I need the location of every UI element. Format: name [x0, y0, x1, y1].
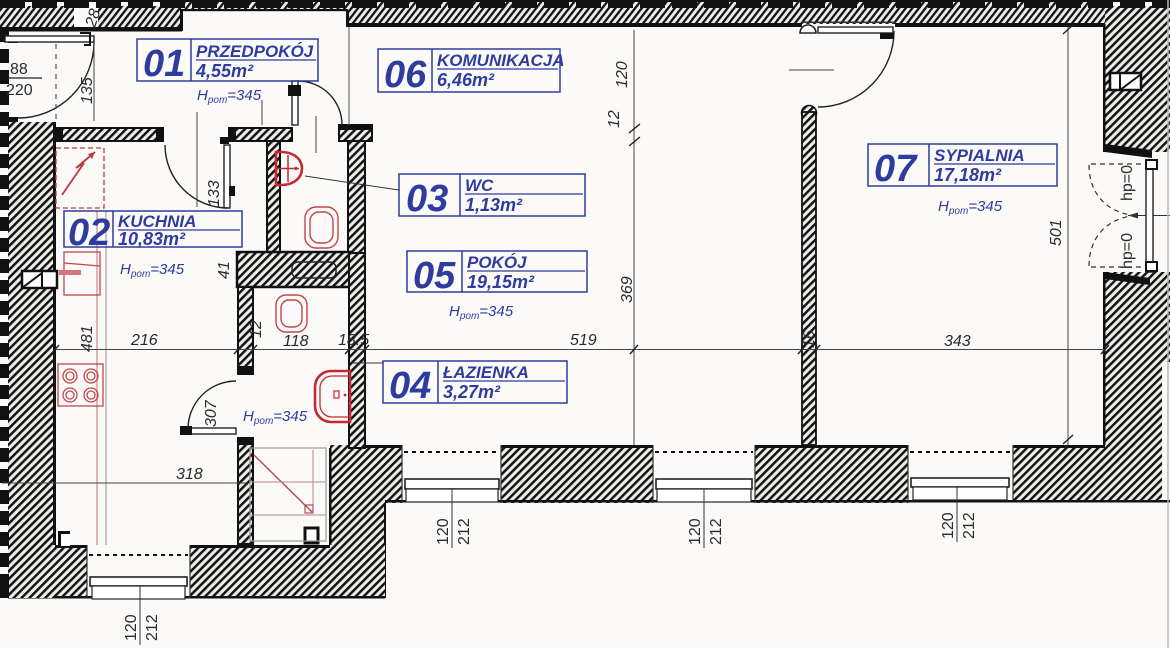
svg-text:212: 212 [708, 518, 725, 545]
svg-text:369: 369 [619, 276, 636, 303]
svg-text:16: 16 [801, 330, 818, 348]
svg-text:10,83m²: 10,83m² [118, 229, 186, 249]
svg-text:88: 88 [10, 61, 28, 78]
svg-text:120: 120 [687, 518, 704, 545]
svg-text:212: 212 [144, 614, 161, 641]
svg-text:4,55m²: 4,55m² [195, 61, 254, 81]
svg-text:04: 04 [389, 365, 431, 407]
svg-text:SYPIALNIA: SYPIALNIA [934, 146, 1025, 165]
svg-text:3,27m²: 3,27m² [443, 382, 501, 402]
svg-text:Hpom=345: Hpom=345 [120, 261, 185, 280]
svg-text:519: 519 [570, 332, 597, 349]
svg-text:6,46m²: 6,46m² [437, 70, 495, 90]
svg-text:02: 02 [68, 212, 110, 254]
svg-text:118: 118 [283, 333, 309, 350]
svg-text:12: 12 [606, 110, 623, 128]
svg-text:343: 343 [944, 333, 971, 350]
svg-text:Hpom=345: Hpom=345 [243, 408, 308, 427]
svg-text:220: 220 [6, 82, 33, 99]
svg-text:318: 318 [176, 466, 203, 483]
svg-text:ŁAZIENKA: ŁAZIENKA [442, 363, 529, 382]
svg-text:18.5: 18.5 [338, 332, 369, 349]
svg-text:135: 135 [79, 77, 96, 104]
svg-text:12: 12 [248, 320, 265, 338]
svg-text:06: 06 [384, 54, 427, 96]
svg-text:41: 41 [216, 261, 233, 279]
svg-text:Hpom=345: Hpom=345 [938, 198, 1003, 217]
svg-text:17,18m²: 17,18m² [934, 165, 1002, 185]
svg-text:WC: WC [465, 176, 494, 195]
svg-text:05: 05 [413, 255, 456, 297]
svg-text:07: 07 [874, 148, 918, 190]
svg-text:133: 133 [206, 180, 223, 207]
svg-text:120: 120 [435, 518, 452, 545]
svg-text:03: 03 [406, 178, 448, 220]
svg-text:POKÓJ: POKÓJ [467, 253, 527, 272]
svg-text:501: 501 [1048, 219, 1065, 246]
svg-text:307: 307 [203, 399, 220, 427]
svg-text:481: 481 [79, 325, 96, 352]
svg-text:216: 216 [130, 332, 158, 349]
svg-text:212: 212 [456, 518, 473, 545]
svg-text:19,15m²: 19,15m² [467, 272, 535, 292]
svg-text:120: 120 [614, 61, 631, 88]
svg-text:1,13m²: 1,13m² [465, 195, 523, 215]
svg-text:01: 01 [143, 43, 185, 85]
svg-text:hp=0: hp=0 [1119, 233, 1136, 269]
svg-text:212: 212 [961, 512, 978, 539]
svg-text:hp=0: hp=0 [1119, 165, 1136, 201]
svg-text:Hpom=345: Hpom=345 [197, 87, 262, 106]
svg-text:Hpom=345: Hpom=345 [449, 303, 514, 322]
svg-text:PRZEDPOKÓJ: PRZEDPOKÓJ [196, 42, 314, 61]
svg-text:120: 120 [940, 512, 957, 539]
svg-text:KOMUNIKACJA: KOMUNIKACJA [437, 51, 565, 70]
svg-text:120: 120 [123, 614, 140, 641]
